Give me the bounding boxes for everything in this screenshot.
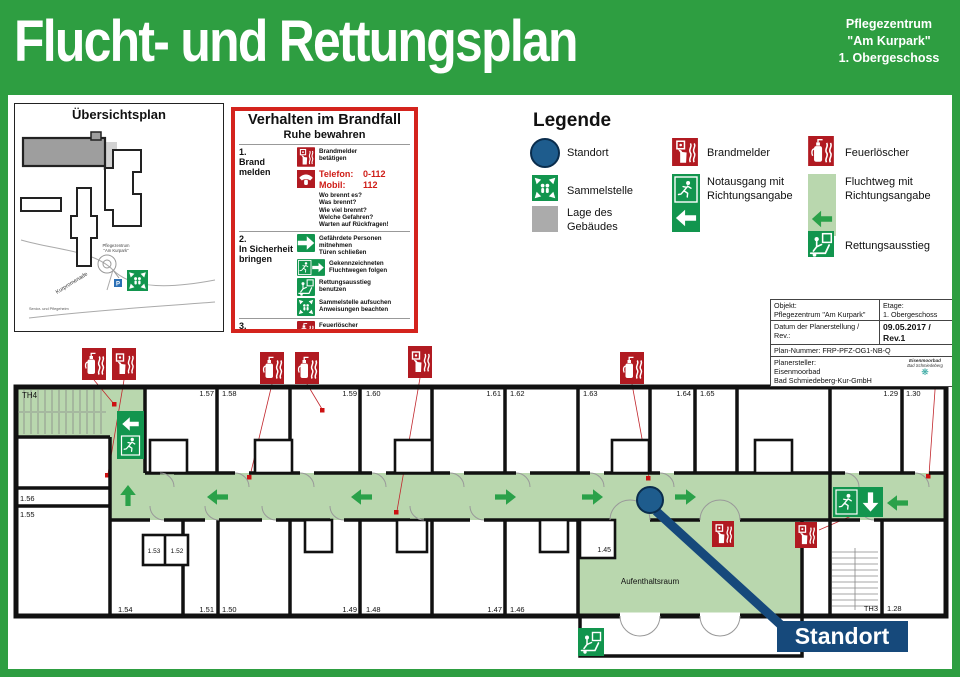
sammelstelle-icon <box>532 175 558 201</box>
room-label: 1.54 <box>118 605 133 614</box>
room-label: 1.63 <box>583 389 598 398</box>
room-label: 1.45 <box>597 547 611 554</box>
legend-label: Fluchtweg mit Richtungsangabe <box>845 176 931 204</box>
plan-title-block: Objekt:Pflegezentrum "Am Kurpark" Etage:… <box>770 299 953 387</box>
mobile-label: Mobil: <box>319 180 359 191</box>
notausgang-icon <box>672 174 700 232</box>
legend-title: Legende <box>533 110 611 132</box>
brandmelder-icon <box>408 346 432 378</box>
legend-label: Sammelstelle <box>567 185 633 199</box>
room-label: 1.48 <box>366 605 381 614</box>
author-line2: Bad Schmiedeberg-Kur-GmbH <box>774 376 872 385</box>
direction-arrow-icon <box>297 234 315 252</box>
room-label: 1.49 <box>342 605 357 614</box>
fire-instructions-subtitle: Ruhe bewahren <box>239 129 410 142</box>
assembly-point-icon <box>297 298 315 316</box>
room-label: 1.59 <box>342 389 357 398</box>
building-label-2: "Am Kurpark" <box>103 248 129 253</box>
legend-label: Notausgang mit Richtungsangabe <box>707 176 793 204</box>
escape-plan-poster: Flucht- und Rettungsplan Pflegezentrum "… <box>0 0 960 677</box>
room-label: 1.65 <box>700 389 715 398</box>
legend-label: Brandmelder <box>707 147 770 161</box>
step-2-number: 2. <box>239 234 247 244</box>
facility-label: Senior- und Pflegeheim <box>29 307 69 311</box>
room-label: 1.47 <box>487 605 502 614</box>
step-2-label: In Sicherheit bringen <box>239 244 293 264</box>
assembly-point-icon <box>127 270 148 291</box>
step-2: 2.In Sicherheit bringen Gefährdete Perso… <box>239 234 410 316</box>
feuerloescher-icon <box>808 136 834 166</box>
rettungsausstieg-icon <box>578 628 604 656</box>
rettungsausstieg-icon <box>808 231 834 257</box>
exit-sign-left <box>117 411 144 459</box>
room-label: 1.30 <box>906 389 921 398</box>
door-gap <box>700 613 740 620</box>
tower-building <box>71 188 97 266</box>
eisenmoorbad-logo-icon: ❋ <box>901 368 949 377</box>
page-title: Flucht- und Rettungsplan <box>14 8 577 75</box>
objekt-label: Objekt: <box>774 301 797 310</box>
building-location-icon <box>532 206 558 232</box>
room-label: 1.51 <box>199 605 214 614</box>
room-label: 1.57 <box>199 389 214 398</box>
floor-plan: Standort TH4 1.57 1.58 1.59 1.60 1.61 1.… <box>0 340 960 677</box>
rescue-exit-icon <box>297 278 315 296</box>
overview-title: Übersichtsplan <box>15 107 223 122</box>
room-label: 1.29 <box>883 389 898 398</box>
feuerloescher-icon <box>260 352 284 384</box>
step-1: 1.Brand melden Brandmelder betätigen Tel… <box>239 147 410 229</box>
plan-number: Plan-Nummer: FRP-PFZ-OG1-NB-Q <box>771 345 952 356</box>
walls <box>16 387 946 656</box>
step-1-label: Brand melden <box>239 157 271 177</box>
legend-label: Standort <box>567 147 609 161</box>
legend-label: Feuerlöscher <box>845 147 909 161</box>
etage-label: Etage: <box>883 301 904 310</box>
phone-label: Telefon: <box>319 169 359 180</box>
step-3-number: 3. <box>239 321 247 331</box>
author-label: Planersteller: <box>774 358 816 367</box>
overview-map-panel: Übersichtsplan Pflegezentrum "Am Kurpark… <box>14 103 224 332</box>
feuerloescher-icon <box>295 352 319 384</box>
room-label: 1.64 <box>676 389 691 398</box>
instruction-text: Gefährdete Personen mitnehmen Türen schl… <box>319 234 382 257</box>
author-line1: Eisenmoorbad <box>774 367 820 376</box>
org-name: Pflegezentrum <box>826 16 952 33</box>
etage-value: 1. Obergeschoss <box>883 310 937 319</box>
fire-instructions-title: Verhalten im Brandfall <box>239 113 410 129</box>
brandmelder-icon <box>297 147 315 167</box>
instruction-text: Rettungsausstieg benutzen <box>319 278 371 294</box>
room-label: 1.46 <box>510 605 525 614</box>
objekt-value: Pflegezentrum "Am Kurpark" <box>774 310 865 319</box>
fire-questions: Wo brennt es? Was brennt? Wie viel brenn… <box>319 191 389 229</box>
highlighted-building-annex <box>91 132 101 140</box>
instruction-text: Feuerlöscher benutzen <box>319 321 358 333</box>
mobile-number: 112 <box>363 180 378 191</box>
parking-letter: P <box>116 282 120 288</box>
room-label: 1.52 <box>171 548 184 555</box>
org-name-2: "Am Kurpark" <box>826 33 952 50</box>
phone-icon <box>297 169 315 189</box>
escape-route-icon <box>297 259 325 276</box>
room-label: TH4 <box>22 391 38 400</box>
brandmelder-icon <box>672 138 698 166</box>
room-label: 1.58 <box>222 389 237 398</box>
instruction-text: Sammelstelle aufsuchen Anweisungen beach… <box>319 298 391 314</box>
room-label: 1.62 <box>510 389 525 398</box>
room-label: TH3 <box>864 604 878 613</box>
room-label-aufenthaltsraum: Aufenthaltsraum <box>621 577 680 586</box>
door-gap <box>620 613 660 620</box>
room-label: 1.60 <box>366 389 381 398</box>
brandmelder-icon <box>112 348 136 380</box>
exit-sign-down <box>833 487 883 517</box>
standort-label: Standort <box>795 623 890 649</box>
brandmelder-icon <box>712 521 734 547</box>
header-band: Flucht- und Rettungsplan Pflegezentrum "… <box>0 0 960 95</box>
step-1-number: 1. <box>239 147 247 157</box>
room-label: 1.53 <box>148 548 161 555</box>
brandmelder-icon <box>795 522 817 548</box>
legend-label: Lage des Gebäudes <box>567 207 618 235</box>
street-label: Kurpromenade <box>55 271 89 295</box>
feuerloescher-icon <box>620 352 644 384</box>
room-label: 1.56 <box>20 494 35 503</box>
room-label: 1.50 <box>222 605 237 614</box>
instruction-text: Gekennzeichneten Fluchtwegen folgen <box>329 259 387 275</box>
date-label: Datum der Planerstellung / Rev.: <box>771 321 880 344</box>
stairs-th3 <box>832 548 878 610</box>
step-3-label: Löschversuch unternehmen <box>239 331 300 333</box>
side-building <box>21 198 61 211</box>
step-3: 3.Löschversuch unternehmen Feuerlöscher … <box>239 321 410 333</box>
feuerloescher-icon <box>82 348 106 380</box>
highlighted-building <box>23 138 105 166</box>
phone-number: 0-112 <box>363 169 386 180</box>
company-logo: Eisenmoorbad Bad Schmiedeberg ❋ <box>898 357 952 386</box>
date-value: 09.05.2017 / Rev.1 <box>880 321 952 344</box>
instruction-text: Brandmelder betätigen <box>319 147 357 163</box>
fire-instructions-panel: Verhalten im Brandfall Ruhe bewahren 1.B… <box>231 107 418 333</box>
floor-name: 1. Obergeschoss <box>826 50 952 67</box>
overview-site-map: Pflegezentrum "Am Kurpark" Senior- und P… <box>15 122 220 327</box>
feuerloescher-icon <box>297 321 315 333</box>
fluchtweg-icon <box>808 174 836 236</box>
fountain-inner <box>103 260 111 268</box>
header-building-info: Pflegezentrum "Am Kurpark" 1. Obergescho… <box>826 16 952 67</box>
room-label: 1.28 <box>887 604 902 613</box>
standort-icon <box>530 138 560 168</box>
room-label: 1.55 <box>20 510 35 519</box>
legend-label: Rettungsausstieg <box>845 240 930 254</box>
escape-route-fill <box>16 387 946 616</box>
room-label: 1.61 <box>486 389 501 398</box>
standort-marker <box>637 487 663 513</box>
